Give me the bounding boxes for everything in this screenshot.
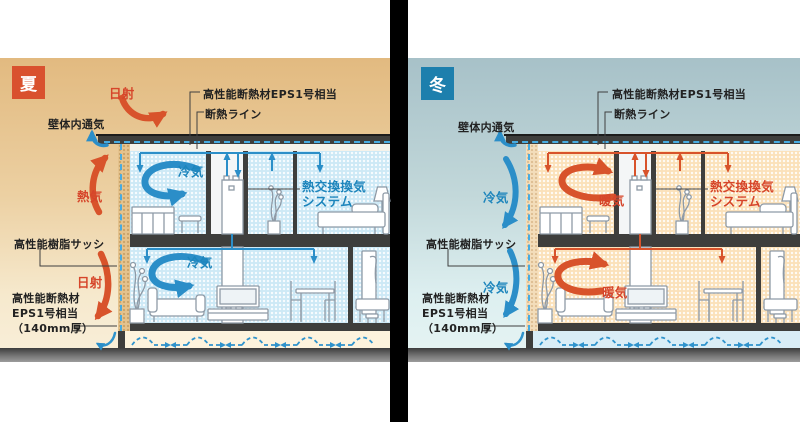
ground bbox=[408, 348, 800, 362]
partition-wall bbox=[701, 151, 705, 234]
wall-insulation-dash-line bbox=[120, 144, 122, 331]
label-roof-insulation: 高性能断熱材EPS1号相当 bbox=[612, 86, 746, 102]
label-insulation-line: 断熱ライン bbox=[614, 106, 671, 122]
foundation bbox=[118, 331, 125, 348]
roof-insulation-dash-line bbox=[512, 141, 800, 143]
wall-insulation-dash-line bbox=[528, 144, 530, 331]
label-wall-cavity-ventilation: 壁体内通気 bbox=[48, 116, 105, 132]
crawlspace bbox=[532, 331, 800, 348]
label-cool-air-upper: 冷気 bbox=[178, 161, 204, 180]
season-badge-winter: 冬 bbox=[421, 67, 454, 100]
label-resin-sash: 高性能樹脂サッシ bbox=[14, 236, 104, 252]
season-badge-summer: 夏 bbox=[12, 66, 45, 99]
mid-floor-slab bbox=[526, 234, 800, 247]
ground bbox=[0, 348, 390, 362]
label-wall-insulation-line1: 高性能断熱材 bbox=[422, 290, 490, 306]
panel-divider bbox=[390, 0, 408, 422]
partition-wall bbox=[243, 151, 248, 234]
label-heat-exchange-line2: システム bbox=[302, 191, 353, 210]
label-resin-sash: 高性能樹脂サッシ bbox=[426, 236, 516, 252]
bathroom-partition-wall bbox=[348, 247, 353, 323]
roof-insulation-dash-line bbox=[104, 141, 390, 143]
label-wall-cavity-ventilation: 壁体内通気 bbox=[458, 119, 515, 135]
mid-floor-slab bbox=[118, 234, 390, 247]
label-heat-exchange-line2: システム bbox=[710, 191, 761, 210]
insulation-seasons-diagram: 夏 日射 壁体内通気 熱気 高性能樹脂サッシ 日射 高性能断熱材 EPS1号相当… bbox=[0, 0, 800, 422]
foundation bbox=[526, 331, 533, 348]
partition-wall bbox=[651, 151, 656, 234]
label-cold-air-upper: 冷気 bbox=[483, 187, 509, 206]
bathroom-partition-wall bbox=[756, 247, 761, 323]
partition-wall bbox=[206, 151, 211, 234]
label-warm-air-lower: 暖気 bbox=[602, 282, 628, 301]
label-wall-insulation-line2: EPS1号相当 bbox=[422, 305, 488, 321]
label-hot-air: 熱気 bbox=[77, 186, 103, 205]
label-roof-insulation: 高性能断熱材EPS1号相当 bbox=[203, 86, 337, 102]
winter-panel: 冬 壁体内通気 冷気 高性能樹脂サッシ 冷気 高性能断熱材 EPS1号相当 （1… bbox=[408, 58, 800, 362]
duct-closet bbox=[211, 151, 243, 234]
label-warm-air-upper: 暖気 bbox=[599, 190, 625, 209]
bottom-floor-slab bbox=[118, 323, 390, 331]
label-solar-radiation-top: 日射 bbox=[109, 83, 135, 102]
label-insulation-line: 断熱ライン bbox=[205, 106, 262, 122]
roof-insulation-layer bbox=[118, 144, 390, 151]
roof-insulation-layer bbox=[526, 144, 800, 151]
label-solar-radiation-bottom: 日射 bbox=[77, 272, 103, 291]
crawlspace bbox=[124, 331, 390, 348]
label-cool-air-lower: 冷気 bbox=[187, 252, 213, 271]
summer-panel: 夏 日射 壁体内通気 熱気 高性能樹脂サッシ 日射 高性能断熱材 EPS1号相当… bbox=[0, 58, 390, 362]
label-wall-insulation-line3: （140mm厚） bbox=[12, 320, 93, 336]
bottom-floor-slab bbox=[526, 323, 800, 331]
partition-wall bbox=[293, 151, 297, 234]
label-wall-insulation-line2: EPS1号相当 bbox=[12, 305, 78, 321]
label-wall-insulation-line1: 高性能断熱材 bbox=[12, 290, 80, 306]
label-wall-insulation-line3: （140mm厚） bbox=[422, 320, 503, 336]
